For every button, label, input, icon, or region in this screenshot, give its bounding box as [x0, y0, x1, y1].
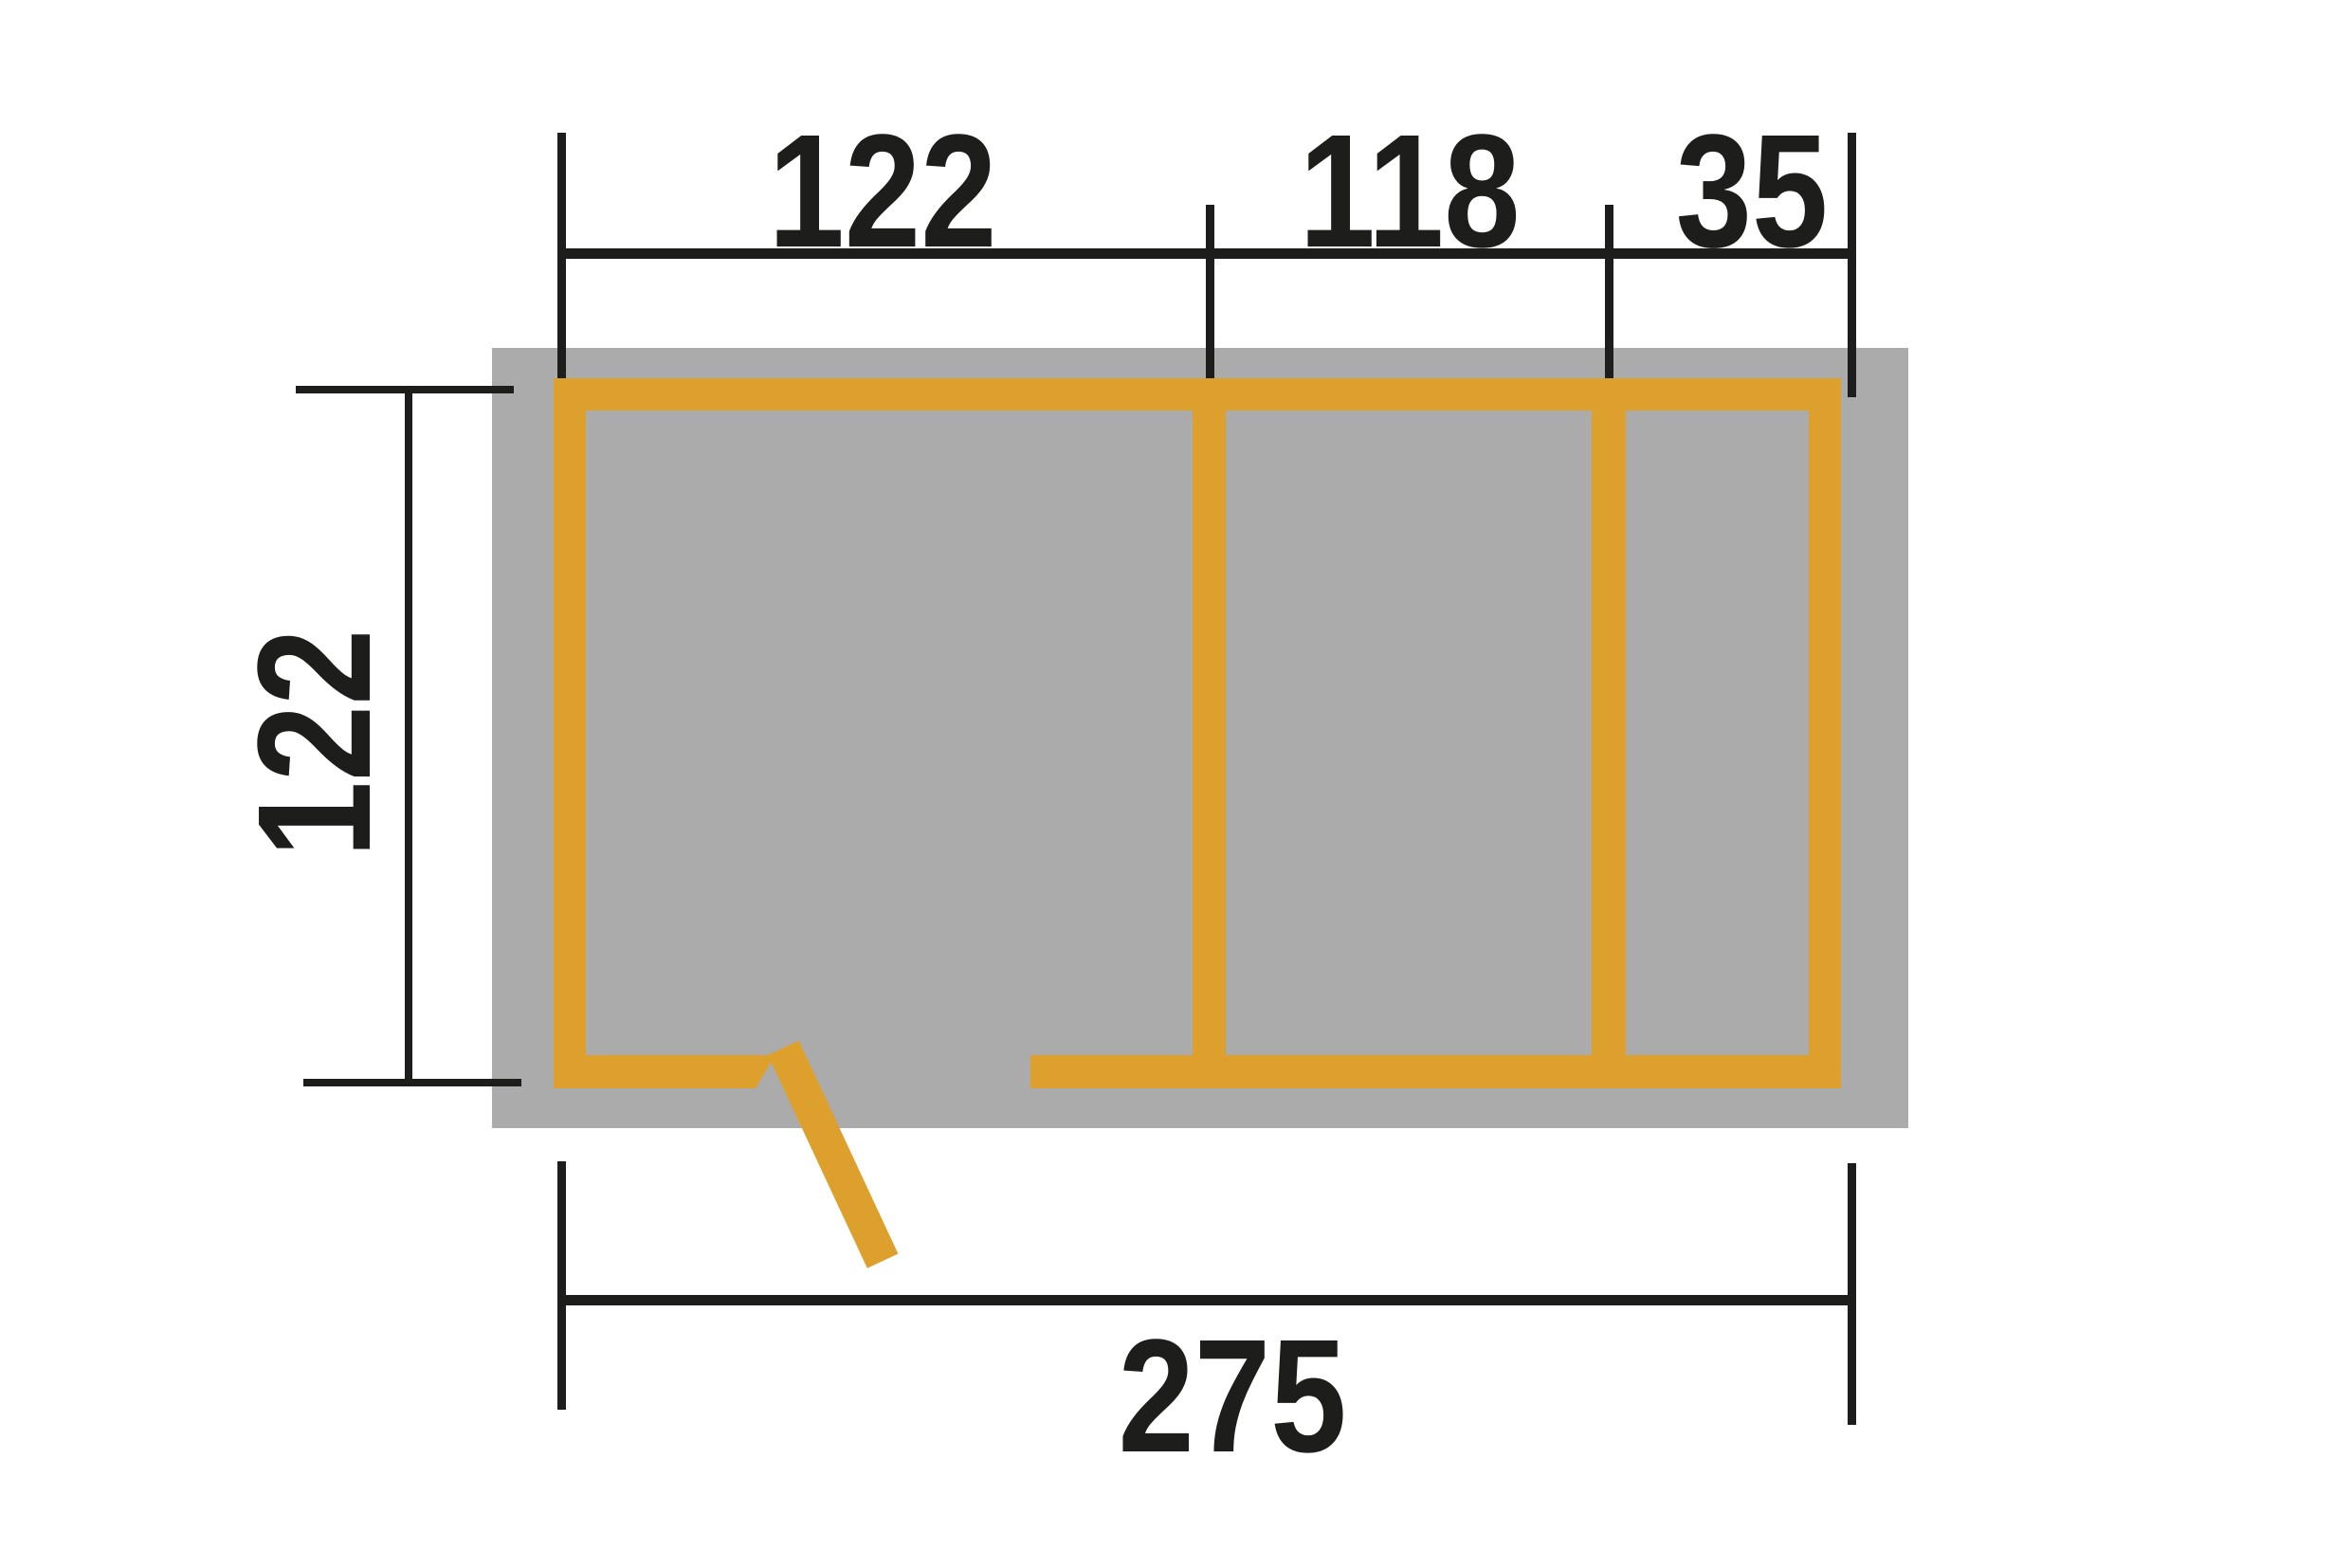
- dimension-tick-bottom-left: [557, 1161, 566, 1410]
- partition-wall-1: [1193, 410, 1226, 1055]
- wall-bottom-left-segment: [554, 1055, 775, 1088]
- wall-bottom-right-segment: [1030, 1055, 1841, 1088]
- dimension-tick-left-top: [296, 386, 514, 393]
- partition-wall-2: [1592, 410, 1626, 1055]
- wall-top: [554, 378, 1841, 410]
- dimension-label-bottom-275: 275: [1118, 1316, 1346, 1477]
- dimension-tick-top-left: [557, 133, 566, 378]
- dimension-line-bottom: [561, 1295, 1851, 1305]
- dimension-line-left: [405, 387, 412, 1085]
- dimension-tick-top-mid2: [1605, 205, 1613, 378]
- dimension-label-top-35: 35: [1676, 111, 1829, 272]
- dimension-tick-bottom-right: [1848, 1163, 1856, 1425]
- dimension-label-top-118: 118: [1299, 111, 1520, 272]
- dimension-label-left-122: 122: [234, 629, 395, 857]
- dimension-label-top-122: 122: [768, 111, 996, 272]
- floor-plan-diagram: 122 118 35 122 275: [0, 0, 2351, 1568]
- wall-right: [1809, 378, 1841, 1088]
- dimension-tick-left-bottom: [303, 1079, 521, 1086]
- dimension-tick-top-mid1: [1206, 205, 1214, 378]
- wall-left: [554, 378, 586, 1088]
- dimension-tick-top-right: [1848, 133, 1856, 397]
